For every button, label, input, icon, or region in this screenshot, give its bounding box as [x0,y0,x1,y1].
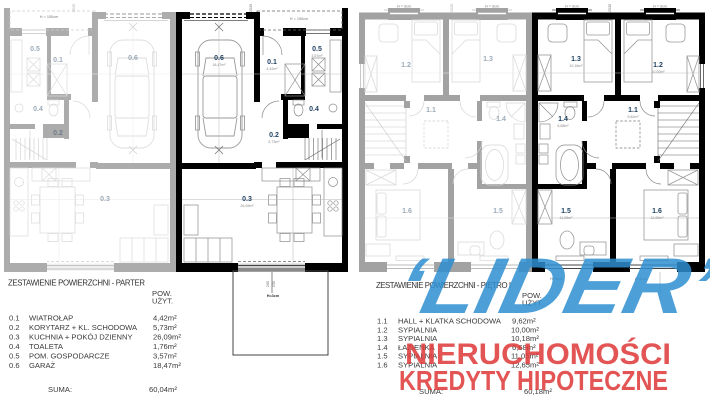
svg-text:0.4: 0.4 [33,106,43,113]
svg-text:H = 150cm: H = 150cm [40,15,58,19]
svg-text:0.3: 0.3 [100,196,110,203]
svg-text:UŻYT.: UŻYT. [152,297,173,306]
svg-text:TOALETA: TOALETA [29,342,64,351]
svg-text:SUMA:: SUMA: [48,385,72,394]
svg-text:2535: 2535 [608,4,612,12]
svg-text:3,57m²: 3,57m² [311,54,323,58]
svg-text:26,09m²: 26,09m² [153,333,181,342]
svg-text:265: 265 [266,281,270,287]
svg-text:1,76m²: 1,76m² [153,342,177,351]
svg-text:10,18m²: 10,18m² [569,64,583,68]
svg-text:0.6: 0.6 [128,55,138,62]
svg-text:H = 0cm: H = 0cm [485,5,499,9]
svg-text:18,47m²: 18,47m² [153,361,181,370]
svg-text:5,73m²: 5,73m² [153,323,177,332]
svg-text:0.4: 0.4 [309,106,319,113]
svg-text:1.6: 1.6 [402,208,412,215]
svg-text:6,68m²: 6,68m² [557,124,569,128]
svg-text:1.3: 1.3 [483,56,493,63]
svg-text:0.3: 0.3 [242,196,252,203]
svg-text:0.5: 0.5 [9,352,20,361]
svg-text:0.3: 0.3 [9,333,20,342]
svg-text:230: 230 [272,281,276,287]
svg-text:1.1: 1.1 [628,107,638,114]
svg-text:1.3: 1.3 [377,334,388,343]
svg-text:H = 150cm: H = 150cm [290,17,308,21]
svg-text:0.6: 0.6 [9,361,20,370]
svg-text:1.2: 1.2 [401,62,411,69]
svg-text:0.1: 0.1 [9,314,20,323]
svg-text:0.1: 0.1 [53,57,63,64]
svg-text:1.4: 1.4 [496,116,506,123]
svg-text:0.2: 0.2 [53,130,63,137]
svg-text:0.6: 0.6 [214,55,224,62]
svg-text:1.6: 1.6 [652,208,662,215]
svg-text:4,42m²: 4,42m² [153,314,177,323]
svg-text:H = 0cm: H = 0cm [653,5,667,9]
svg-text:1.5: 1.5 [377,352,388,361]
svg-text:1.4: 1.4 [558,116,568,123]
svg-text:18,47m²: 18,47m² [212,63,226,67]
svg-text:26,09m²: 26,09m² [240,204,254,208]
svg-text:KUCHNIA + POKÓJ DZIENNY: KUCHNIA + POKÓJ DZIENNY [29,333,133,342]
svg-text:2535: 2535 [249,4,253,12]
svg-text:1.5: 1.5 [493,208,503,215]
svg-text:3,57m²: 3,57m² [153,352,177,361]
svg-text:0.2: 0.2 [9,323,20,332]
svg-text:11,05m²: 11,05m² [560,216,574,220]
svg-text:1.1: 1.1 [426,107,436,114]
svg-text:2535: 2535 [450,4,454,12]
svg-text:1.5: 1.5 [561,208,571,215]
svg-text:1.2: 1.2 [377,325,388,334]
svg-text:0.4: 0.4 [9,342,20,351]
svg-text:H = 0cm: H = 0cm [565,5,579,9]
svg-text:POM. GOSPODARCZE: POM. GOSPODARCZE [29,352,110,361]
svg-text:4,42m²: 4,42m² [266,67,278,71]
svg-text:WIATROŁAP: WIATROŁAP [29,314,73,323]
svg-text:0.5: 0.5 [312,46,322,53]
svg-text:‘LIDER’: ‘LIDER’ [389,242,710,330]
svg-text:12,65m²: 12,65m² [650,216,664,220]
svg-text:0.5: 0.5 [30,46,40,53]
svg-text:10,00m²: 10,00m² [651,70,665,74]
svg-text:H = 0cm: H = 0cm [397,5,411,9]
svg-text:1.3: 1.3 [571,56,581,63]
svg-text:1.6: 1.6 [377,360,388,369]
svg-text:1.1: 1.1 [377,317,388,326]
svg-text:0.2: 0.2 [269,132,279,139]
svg-text:KORYTARZ + KL. SCHODOWA: KORYTARZ + KL. SCHODOWA [29,323,138,332]
svg-text:5,73m²: 5,73m² [268,140,280,144]
svg-text:H=3cm: H=3cm [267,294,280,298]
svg-text:2535: 2535 [72,4,76,12]
svg-text:1.2: 1.2 [653,62,663,69]
svg-text:9,62m²: 9,62m² [627,115,639,119]
svg-text:KREDYTY HIPOTECZNE: KREDYTY HIPOTECZNE [399,365,668,396]
svg-text:1.4: 1.4 [377,343,388,352]
svg-text:0.1: 0.1 [267,59,277,66]
svg-text:60,04m²: 60,04m² [149,385,177,394]
svg-text:GARAŻ: GARAŻ [29,361,56,370]
svg-text:ZESTAWIENIE POWIERZCHNI - PART: ZESTAWIENIE POWIERZCHNI - PARTER [8,279,145,288]
